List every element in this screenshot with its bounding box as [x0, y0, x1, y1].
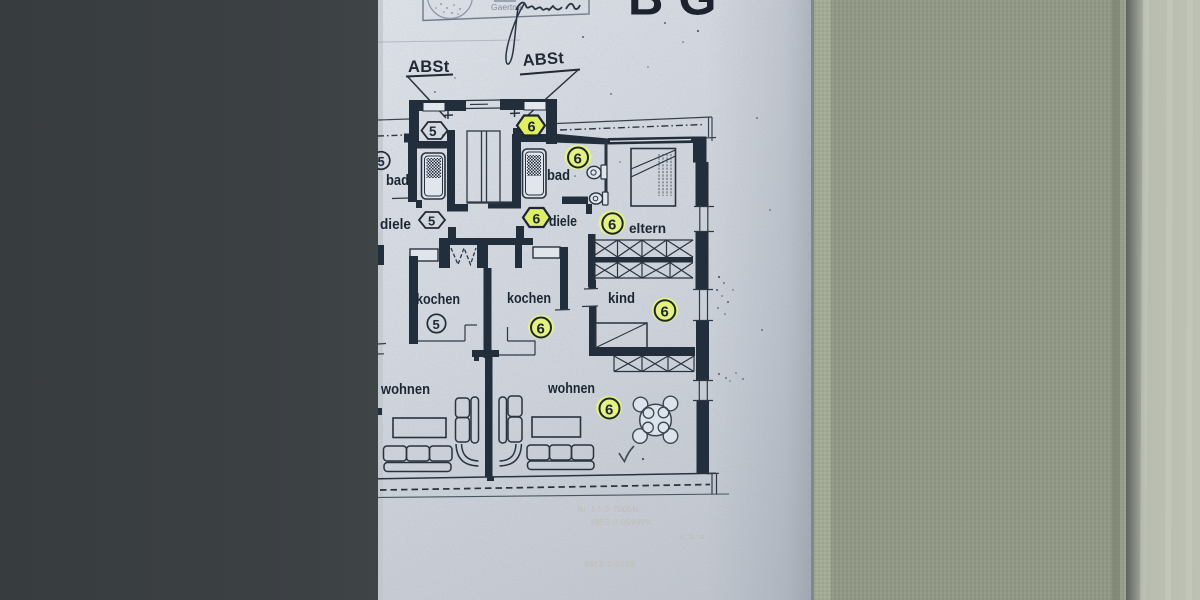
svg-text:6: 6 — [574, 151, 582, 168]
svg-text:6: 6 — [528, 120, 536, 136]
svg-text:ABSt: ABSt — [522, 49, 565, 70]
svg-text:bad: bad — [547, 168, 570, 184]
svg-text:5: 5 — [378, 154, 385, 169]
svg-text:4853-2-0599: 4853-2-0599 — [584, 560, 635, 569]
svg-text:kochen: kochen — [416, 292, 460, 308]
svg-text:wohnen: wohnen — [547, 381, 595, 397]
svg-text:6: 6 — [608, 217, 616, 234]
svg-text:eltern: eltern — [629, 220, 666, 236]
svg-text:kind: kind — [608, 290, 635, 307]
svg-text:Nr. 57-3-7005N: Nr. 57-3-7005N — [577, 505, 639, 514]
svg-text:wohnen: wohnen — [380, 382, 430, 398]
svg-text:6: 6 — [605, 402, 613, 419]
svg-text:BG: BG — [628, 0, 732, 26]
svg-text:6: 6 — [537, 321, 545, 338]
svg-text:e. s. st: e. s. st — [680, 534, 705, 541]
svg-text:6: 6 — [533, 211, 541, 227]
svg-text:kochen: kochen — [507, 291, 551, 307]
svg-text:5: 5 — [429, 124, 437, 139]
svg-text:4853-2-0599PK: 4853-2-0599PK — [590, 518, 653, 527]
svg-text:5: 5 — [433, 317, 440, 332]
svg-text:5: 5 — [428, 214, 435, 229]
svg-text:diele: diele — [380, 217, 411, 233]
svg-text:ABSt: ABSt — [408, 58, 450, 76]
svg-text:diele: diele — [549, 214, 577, 230]
svg-text:6: 6 — [661, 304, 669, 321]
svg-text:bad: bad — [386, 173, 409, 189]
